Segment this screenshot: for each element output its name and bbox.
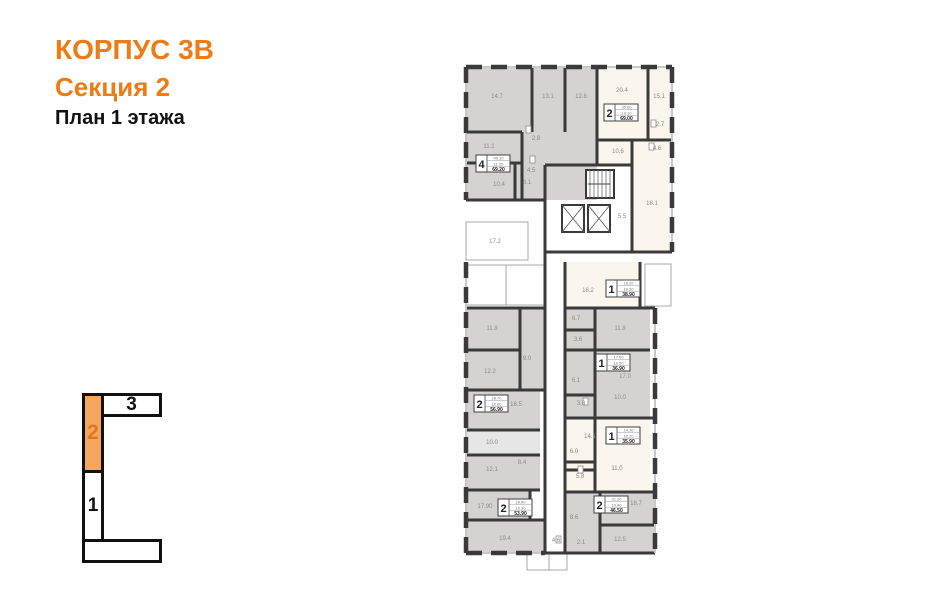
room-area-label: 20.4 (616, 88, 628, 94)
apartment-rooms-count: 1 (608, 431, 614, 443)
apartment-rooms-count: 2 (476, 399, 482, 411)
apartment-zone[interactable] (466, 430, 540, 455)
apartment-rooms-count: 4 (478, 159, 485, 171)
room-area-label: 14.7 (491, 94, 503, 100)
room-area-label: 4.6 (552, 538, 561, 544)
room-area-label: 12.8 (575, 94, 587, 100)
room-area-label: 5.5 (618, 214, 627, 220)
room-area-label: 10.6 (612, 149, 624, 155)
room-area-label: 19.4 (499, 536, 511, 542)
balcony (527, 553, 549, 570)
balcony (549, 553, 567, 570)
room-area-label: 11.8 (486, 326, 498, 332)
apartment-rooms-count: 1 (608, 284, 614, 296)
apartment-zone[interactable] (597, 140, 672, 165)
apartment-total-area: 36.90 (612, 366, 625, 372)
room-area-label: 10.0 (614, 395, 626, 401)
room-area-label: 10.4 (493, 182, 505, 188)
room-area-label: 6.7 (572, 316, 581, 322)
apartment-sub-area: 29.90 (515, 500, 526, 505)
apartment-total-area: 56.90 (490, 407, 503, 413)
room-area-label: 18.7 (630, 501, 642, 507)
room-area-label: 8.4 (518, 460, 527, 466)
room-area-label: 3.6 (574, 337, 583, 343)
room-area-label: 16.5 (510, 402, 522, 408)
apartment-rooms-count: 2 (596, 500, 602, 512)
apartment-sub-area: 10.30 (623, 286, 634, 291)
apartment-sub-area: 11.20 (494, 161, 504, 166)
apartment-sub-area: 28.70 (491, 396, 502, 401)
balcony (645, 264, 671, 306)
floor-plan: 14.713.112.811.12.84.510.46.120.415.12.7… (0, 0, 941, 600)
room-area-label: 8.6 (570, 515, 579, 521)
apartment-sub-area: 35.60 (621, 105, 632, 110)
apartment-sub-area: 10.20 (623, 433, 634, 438)
apartment-sub-area: 10.30 (515, 505, 526, 510)
room-area-label: 15.1 (653, 94, 665, 100)
room-area-label: 17.90 (477, 504, 493, 510)
room-area-label: 2.1 (577, 540, 586, 546)
apartment-zone[interactable] (466, 455, 540, 490)
room-area-label: 6.0 (570, 449, 579, 455)
apartment-sub-area: 18.20 (623, 281, 634, 286)
apartment-sub-area: 10.50 (613, 360, 624, 365)
apartment-sub-area: 19.10 (621, 110, 632, 115)
room-area-label: 2.7 (656, 122, 665, 128)
balcony (466, 265, 506, 305)
room-area-label: 4.5 (527, 168, 536, 174)
room-area-label: 2.8 (532, 136, 541, 142)
room-area-label: 18.2 (582, 288, 594, 294)
room-area-label: 11.1 (483, 144, 495, 150)
room-area-label: 13.1 (542, 94, 554, 100)
room-area-label: 9.0 (523, 356, 532, 362)
apartment-total-area: 38.90 (622, 292, 635, 298)
fixture-icon (578, 466, 583, 473)
room-area-label: 10.0 (486, 440, 498, 446)
apartment-total-area: 35.90 (622, 439, 635, 445)
apartment-sub-area: 10.60 (491, 401, 502, 406)
fixture-icon (526, 126, 531, 133)
apartment-sub-area: 10.40 (611, 502, 622, 507)
room-area-label: 4.6 (653, 146, 662, 152)
room-area-label: 11.0 (611, 466, 623, 472)
apartment-rooms-count: 2 (606, 108, 612, 120)
apartment-sub-area: 31.20 (611, 497, 622, 502)
apartment-rooms-count: 2 (500, 503, 506, 515)
apartment-zone[interactable] (632, 165, 672, 252)
room-area-label: 17.0 (619, 374, 631, 380)
apartment-total-area: 69.00 (620, 116, 633, 122)
room-area-label: 12.2 (484, 369, 496, 375)
apartment-rooms-count: 1 (598, 358, 604, 370)
page: КОРПУС 3В Секция 2 План 1 этажа 3 2 1 14… (0, 0, 941, 600)
room-area-label: 12.1 (486, 467, 498, 473)
room-area-label: 14.1 (584, 434, 596, 440)
room-area-label: 3.8 (577, 401, 586, 407)
room-area-label: 6.1 (523, 180, 532, 186)
apartment-sub-area: 14.10 (623, 428, 634, 433)
apartment-total-area: 69.20 (492, 167, 505, 173)
room-area-label: 12.5 (614, 537, 626, 543)
balcony (506, 265, 544, 305)
fixture-icon (530, 156, 535, 163)
apartment-sub-area: 40.10 (493, 156, 504, 161)
room-area-label: 5.8 (576, 474, 585, 480)
apartment-sub-area: 17.00 (613, 355, 624, 360)
room-area-label: 17.2 (489, 239, 501, 245)
room-area-label: 18.1 (646, 201, 658, 207)
room-area-label: 6.1 (572, 378, 581, 384)
room-area-label: 11.8 (614, 326, 626, 332)
apartment-total-area: 53.90 (514, 511, 527, 517)
apartment-total-area: 46.50 (610, 508, 623, 514)
